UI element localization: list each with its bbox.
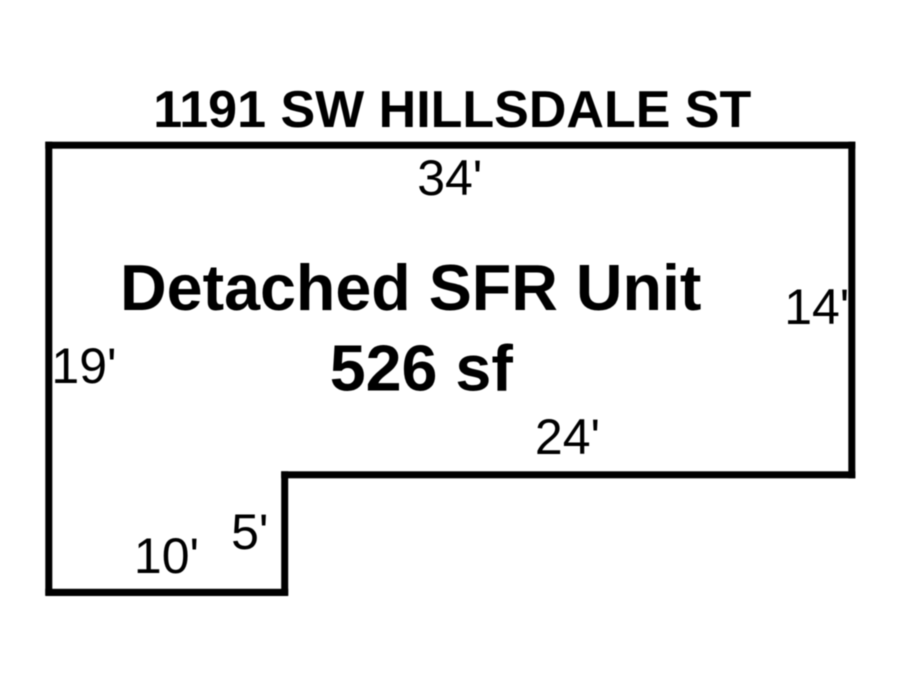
svg-text:14': 14' — [784, 279, 849, 335]
svg-text:24': 24' — [535, 409, 600, 465]
svg-text:34': 34' — [417, 150, 482, 206]
svg-text:5': 5' — [231, 504, 268, 560]
svg-text:19': 19' — [51, 338, 116, 394]
svg-text:Detached SFR Unit: Detached SFR Unit — [120, 252, 701, 324]
svg-text:526 sf: 526 sf — [330, 332, 514, 404]
svg-text:10': 10' — [134, 528, 199, 584]
svg-text:1191 SW HILLSDALE ST: 1191 SW HILLSDALE ST — [153, 81, 751, 139]
